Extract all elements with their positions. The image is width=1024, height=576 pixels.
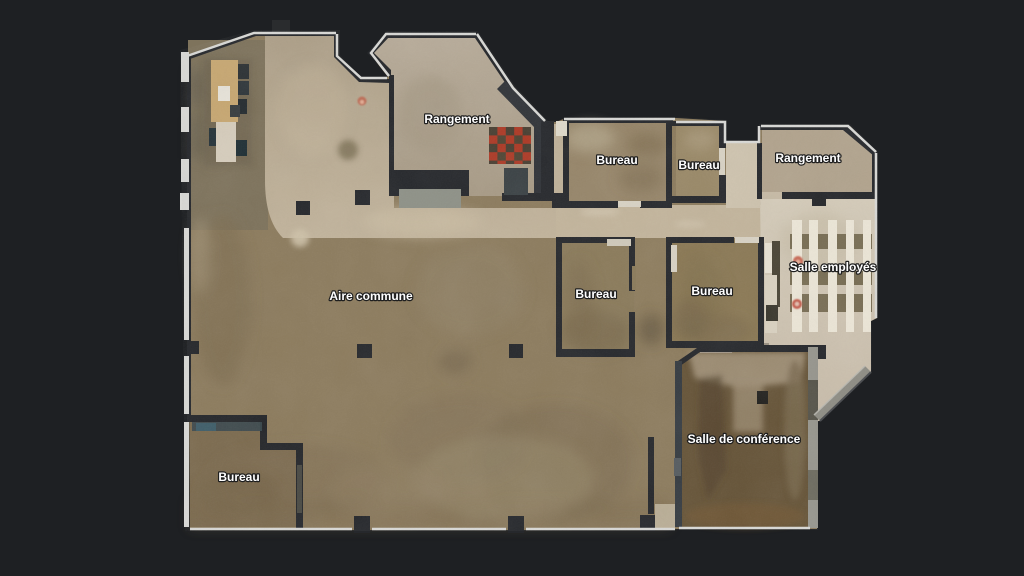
svg-text:Salle de conférence: Salle de conférence (688, 432, 801, 446)
svg-text:Bureau: Bureau (691, 284, 732, 298)
svg-text:Rangement: Rangement (775, 151, 840, 165)
svg-text:Bureau: Bureau (596, 153, 637, 167)
svg-text:Bureau: Bureau (575, 287, 616, 301)
svg-text:Bureau: Bureau (218, 470, 259, 484)
svg-text:Aire commune: Aire commune (329, 289, 413, 303)
svg-text:Rangement: Rangement (424, 112, 489, 126)
svg-text:Bureau: Bureau (678, 158, 719, 172)
svg-text:Salle employés: Salle employés (790, 260, 877, 274)
